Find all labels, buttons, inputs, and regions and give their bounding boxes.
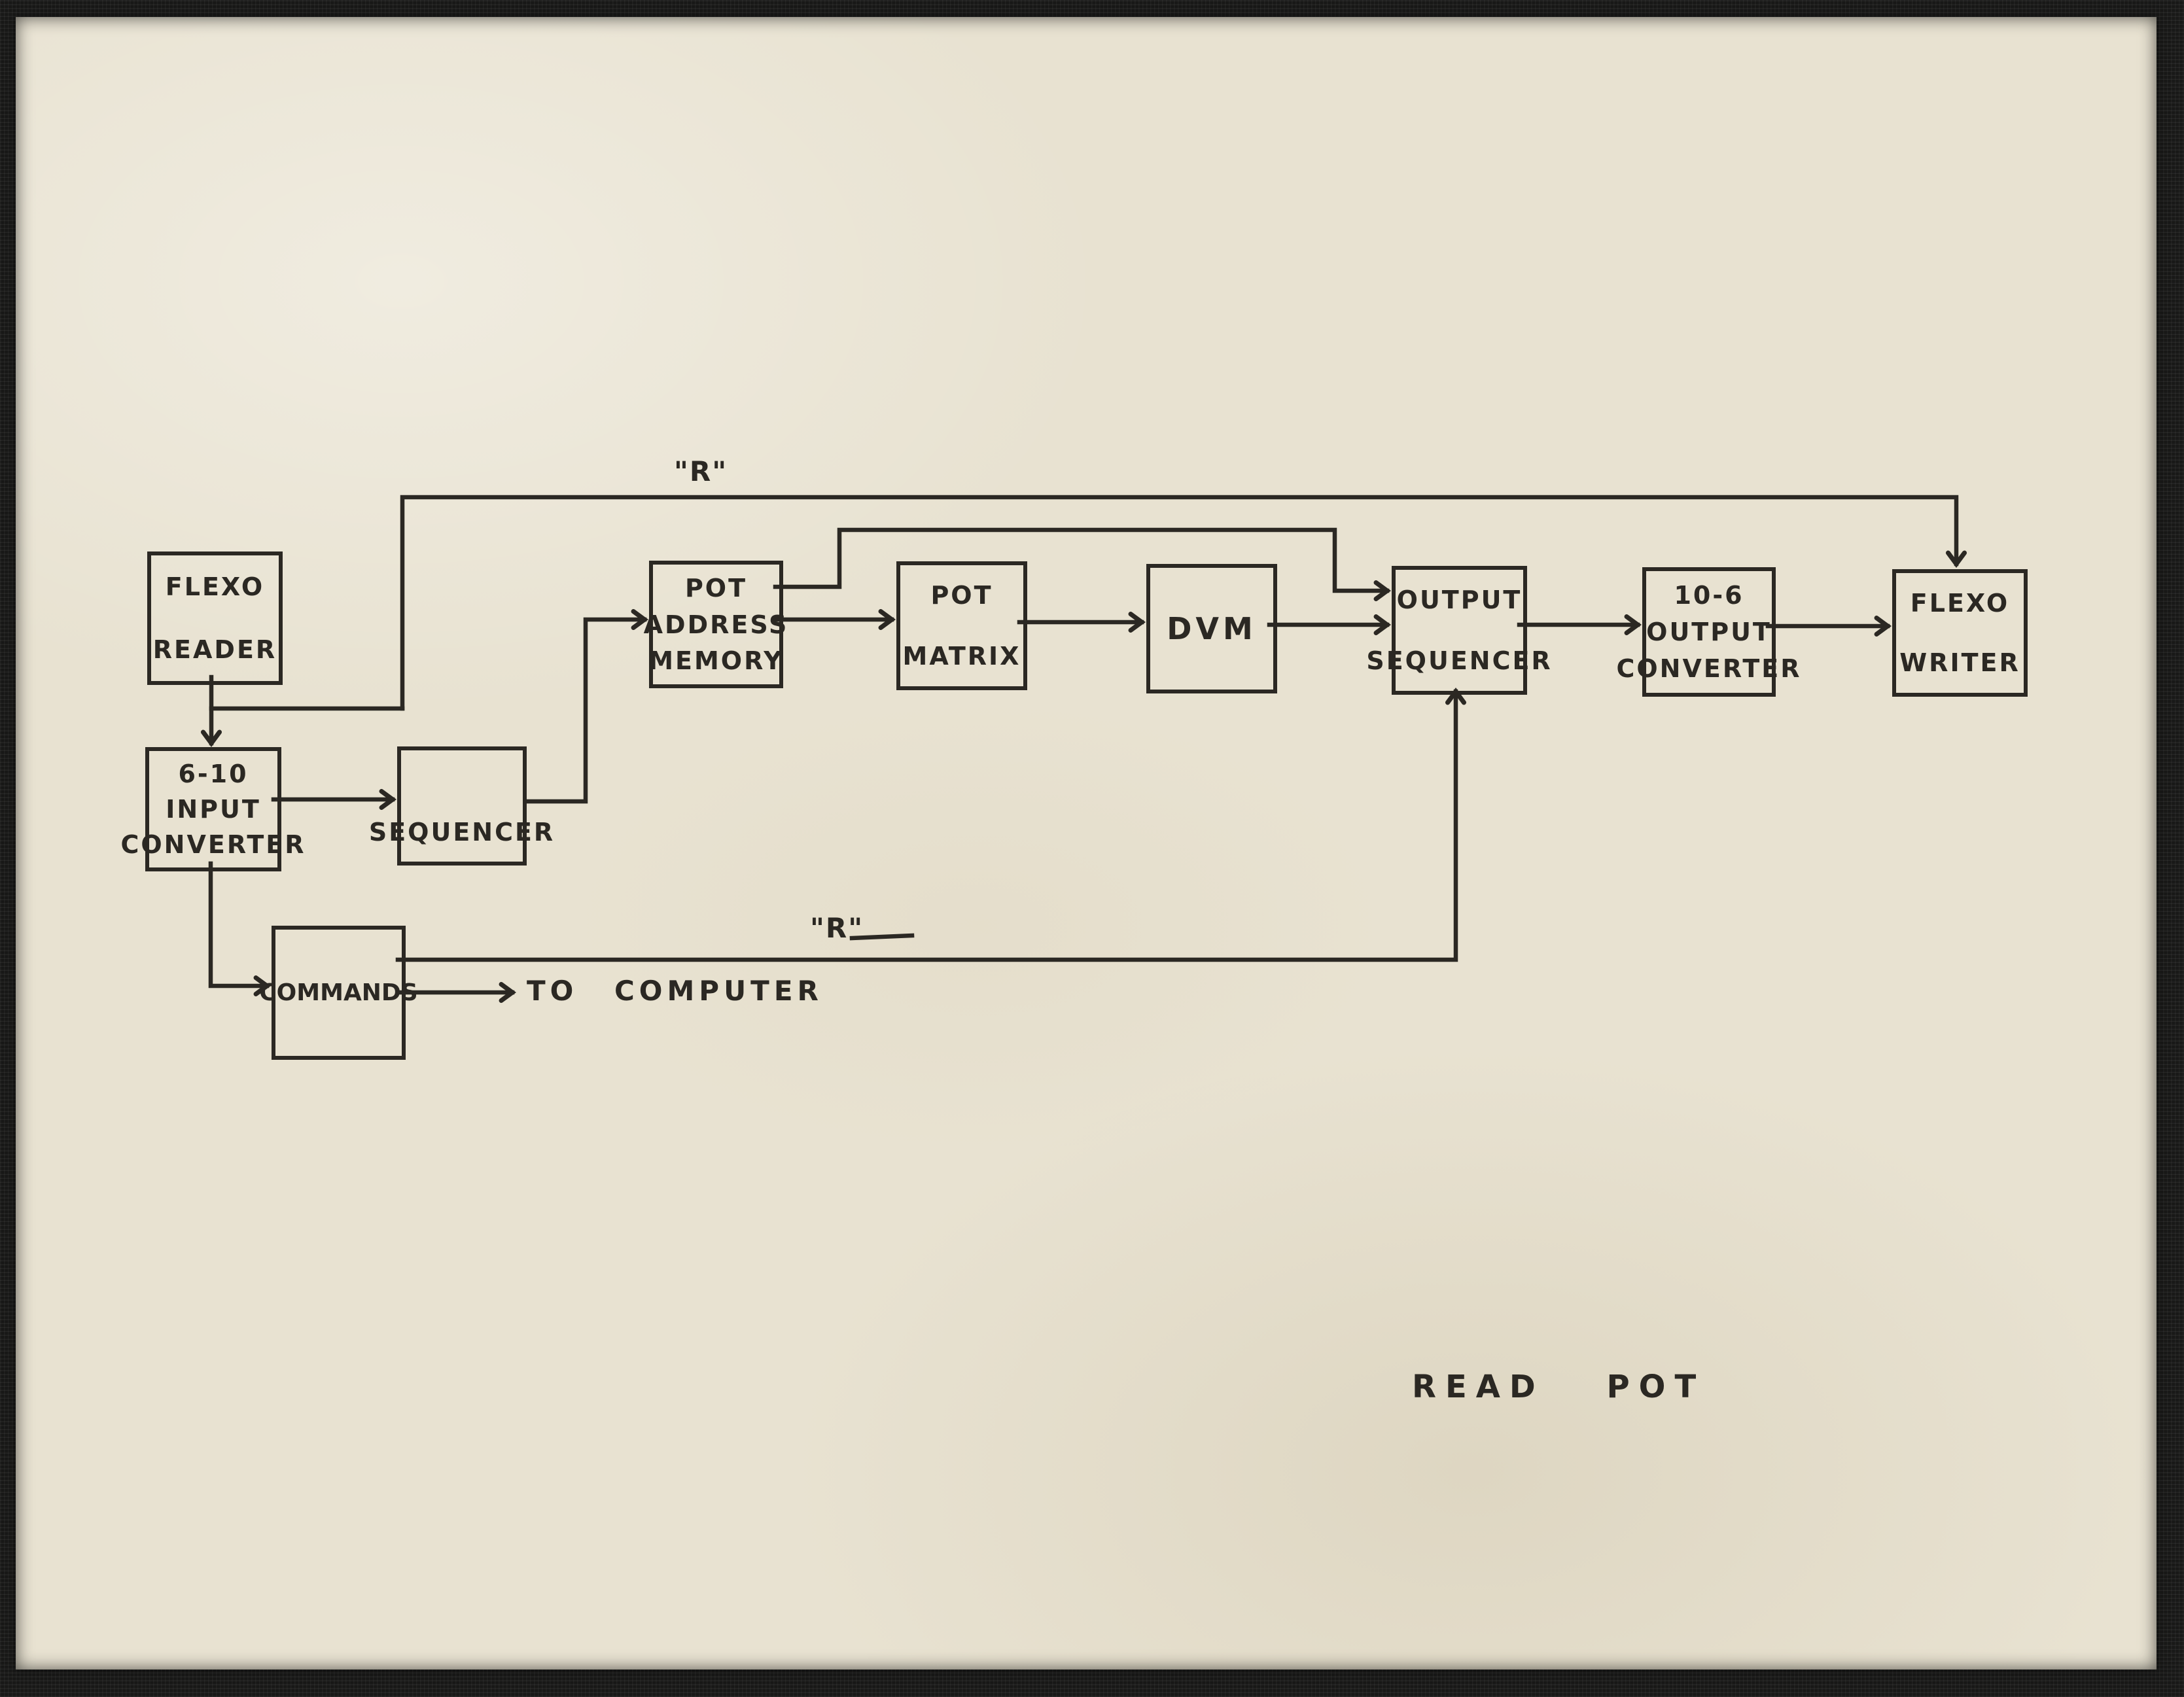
node-pot-address-memory-label-2: ADDRESS: [644, 612, 789, 637]
connector-layer: [0, 0, 2184, 1697]
diagram-caption: READ POT: [1412, 1371, 1705, 1403]
node-flexo-writer-label-2: WRITER: [1899, 650, 2020, 675]
connector-commands-r-line-to-output-sequencer: [398, 691, 1456, 960]
connector-sequencer-to-pot-address-memory: [527, 620, 644, 801]
node-pot-matrix-label-1: POT: [930, 583, 993, 608]
connector-pot-address-memory-to-output-sequencer: [775, 530, 1387, 591]
node-pot-address-memory-label-3: MEMORY: [648, 648, 784, 673]
node-input-converter-label-1: 6-10: [178, 761, 248, 786]
node-output-converter-label-1: 10-6: [1674, 583, 1744, 608]
scanned-diagram-page: FLEXO READER 6-10 INPUT CONVERTER SEQUEN…: [0, 0, 2184, 1697]
node-commands: COMMANDS: [272, 926, 406, 1060]
node-input-converter: 6-10 INPUT CONVERTER: [145, 747, 281, 871]
node-pot-address-memory: POT ADDRESS MEMORY: [649, 561, 783, 688]
node-dvm-label: DVM: [1167, 614, 1257, 644]
r-label-top: "R": [674, 458, 728, 485]
node-output-converter-label-2: OUTPUT: [1646, 620, 1772, 644]
connector-input-converter-to-commands: [211, 864, 267, 986]
node-flexo-reader: FLEXO READER: [147, 551, 283, 685]
node-output-converter: 10-6 OUTPUT CONVERTER: [1642, 567, 1776, 697]
node-commands-label: COMMANDS: [259, 981, 417, 1005]
r-label-mid: "R": [810, 915, 864, 942]
node-output-converter-label-3: CONVERTER: [1616, 656, 1801, 681]
node-flexo-reader-label-2: READER: [153, 637, 277, 662]
node-output-sequencer: OUTPUT SEQUENCER: [1392, 566, 1527, 695]
node-pot-matrix-label-2: MATRIX: [903, 644, 1021, 669]
to-computer-label: TO COMPUTER: [527, 977, 823, 1005]
node-input-converter-label-2: INPUT: [166, 797, 261, 822]
node-dvm: DVM: [1146, 564, 1277, 693]
node-output-sequencer-label-2: SEQUENCER: [1366, 648, 1552, 673]
node-pot-address-memory-label-1: POT: [685, 576, 747, 601]
node-output-sequencer-label-1: OUTPUT: [1397, 587, 1523, 612]
node-input-converter-label-3: CONVERTER: [120, 832, 306, 857]
node-flexo-writer: FLEXO WRITER: [1892, 569, 2028, 697]
node-flexo-reader-label-1: FLEXO: [166, 574, 264, 599]
node-sequencer-label: SEQUENCER: [369, 820, 555, 845]
node-sequencer: SEQUENCER: [397, 746, 527, 866]
node-pot-matrix: POT MATRIX: [896, 561, 1027, 690]
node-flexo-writer-label-1: FLEXO: [1911, 591, 2009, 616]
